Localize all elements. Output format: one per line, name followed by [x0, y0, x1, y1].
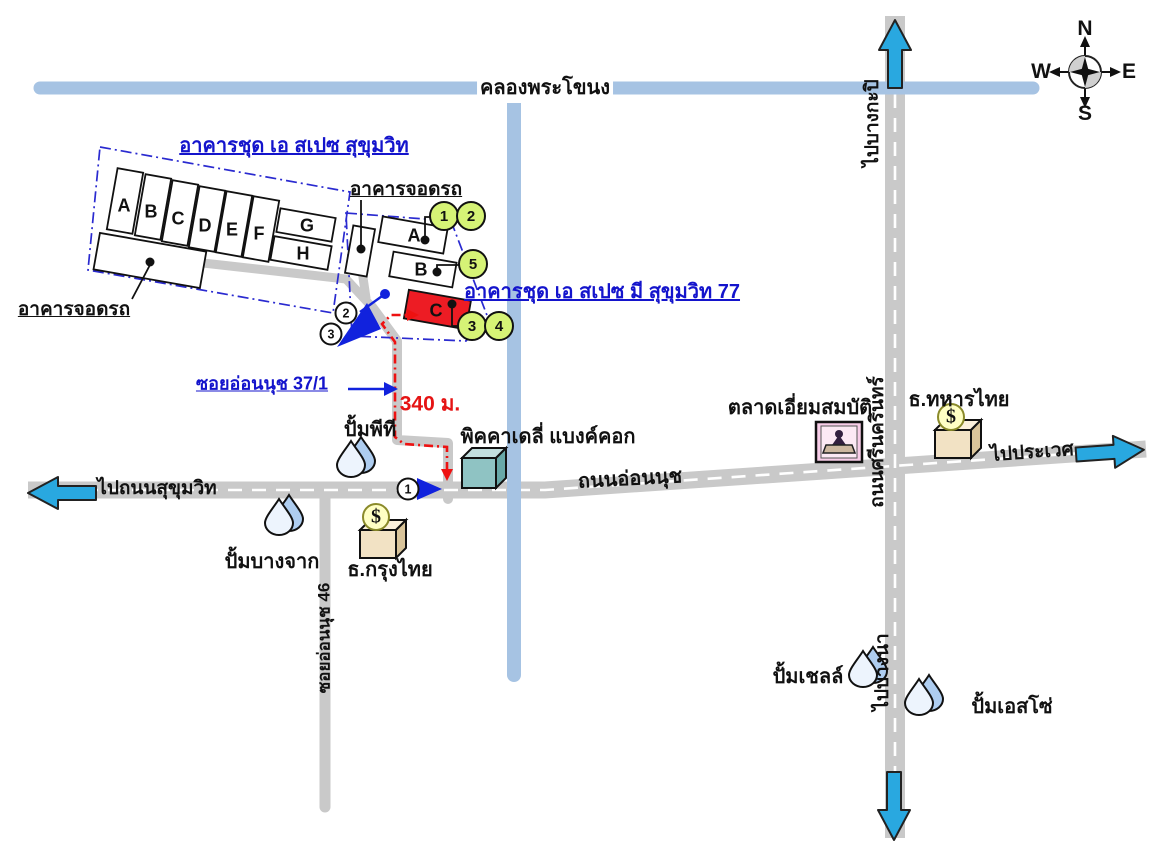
unit-marker-1: 1: [429, 201, 459, 231]
to-sukhumvit-label: ไปถนนสุขุมวิท: [97, 473, 216, 503]
onnut-road-label: ถนนอ่อนนุช: [577, 459, 683, 496]
compass-south-label: S: [1078, 102, 1092, 126]
market-label: ตลาดเอี่ยมสมบัติ: [728, 391, 872, 423]
piccadilly-label: พิคคาเดลี่ แบงค์คอก: [460, 420, 635, 452]
to-prawet-label: ไปประเวศ: [989, 434, 1074, 470]
building-letter: A: [118, 196, 131, 217]
building-letter: D: [199, 216, 212, 237]
route-step-3: 3: [320, 323, 343, 346]
dot-parking1: [146, 258, 155, 267]
canal-label: คลองพระโขนง: [477, 71, 613, 103]
unit-marker-5: 5: [458, 249, 488, 279]
building-letter: G: [300, 216, 314, 237]
bangchak-station-label: ปั้มบางจาก: [225, 545, 320, 577]
route-step-2: 2: [335, 302, 358, 325]
shell-station-label: ปั้มเชลล์: [773, 660, 844, 692]
parking2-label: อาคารจอดรถ: [350, 174, 462, 204]
compass-east-label: E: [1122, 60, 1136, 84]
route-step-1: 1: [397, 478, 420, 501]
building-letter: F: [254, 224, 265, 245]
dot-building-b2: [433, 268, 442, 277]
piccadilly-building-icon: [462, 448, 506, 488]
building-letter: E: [226, 220, 238, 241]
unit-marker-2: 2: [456, 201, 486, 231]
building-letter: B: [415, 260, 428, 281]
arrow-east-to-prawet: [1075, 434, 1145, 471]
building-letter: B: [145, 202, 158, 223]
complex2-title: อาคารชุด เอ สเปซ มี สุขุมวิท 77: [464, 275, 740, 307]
srinakarin-road-label: ถนนศรีนครินทร์: [862, 376, 892, 507]
dot-building-a2: [421, 236, 430, 245]
unit-marker-4: 4: [484, 311, 514, 341]
soi-37-1-label: ซอยอ่อนนุช 37/1: [196, 369, 328, 398]
building-letter: H: [297, 244, 310, 265]
building-letter: A: [408, 226, 421, 247]
pt-station-label: ปั้มพีที: [344, 413, 396, 445]
compass-north-label: N: [1077, 17, 1092, 41]
complex1-title: อาคารชุด เอ สเปซ สุขุมวิท: [179, 129, 408, 161]
unit-marker-3: 3: [457, 311, 487, 341]
krungthai-bank-label: ธ.กรุงไทย: [347, 553, 432, 585]
arrow-south-to-bangna: [878, 772, 910, 840]
market-icon: [816, 422, 862, 462]
route-distance-label: 340 ม.: [400, 388, 461, 421]
entry-blue-dot: [380, 289, 390, 299]
dollar-symbol: $: [946, 406, 956, 429]
bangchak-station-icon: [265, 495, 303, 535]
to-bangna-label: ไปบางนา: [867, 633, 897, 710]
soi-46-label: ซอยอ่อนนุช 46: [311, 583, 338, 694]
building-letter: C: [172, 209, 185, 230]
to-bangkapi-label: ไปบางกะปิ: [857, 79, 887, 166]
tmb-bank-label: ธ.ทหารไทย: [908, 383, 1009, 415]
parking1-label: อาคารจอดรถ: [18, 294, 130, 324]
compass-rose-icon: [1049, 36, 1121, 108]
dot-building-c2: [448, 300, 457, 309]
building-letter: C: [430, 301, 443, 322]
dollar-symbol: $: [371, 506, 381, 529]
esso-station-label: ปั้มเอสโซ่: [971, 690, 1052, 722]
arrow-north-to-bangkapi: [879, 20, 911, 88]
compass-west-label: W: [1031, 60, 1051, 84]
esso-station-icon: [905, 675, 943, 715]
dot-parking2: [357, 245, 366, 254]
thai-direction-map: คลองพระโขนง อาคารชุด เอ สเปซ สุขุมวิท อา…: [0, 0, 1158, 860]
